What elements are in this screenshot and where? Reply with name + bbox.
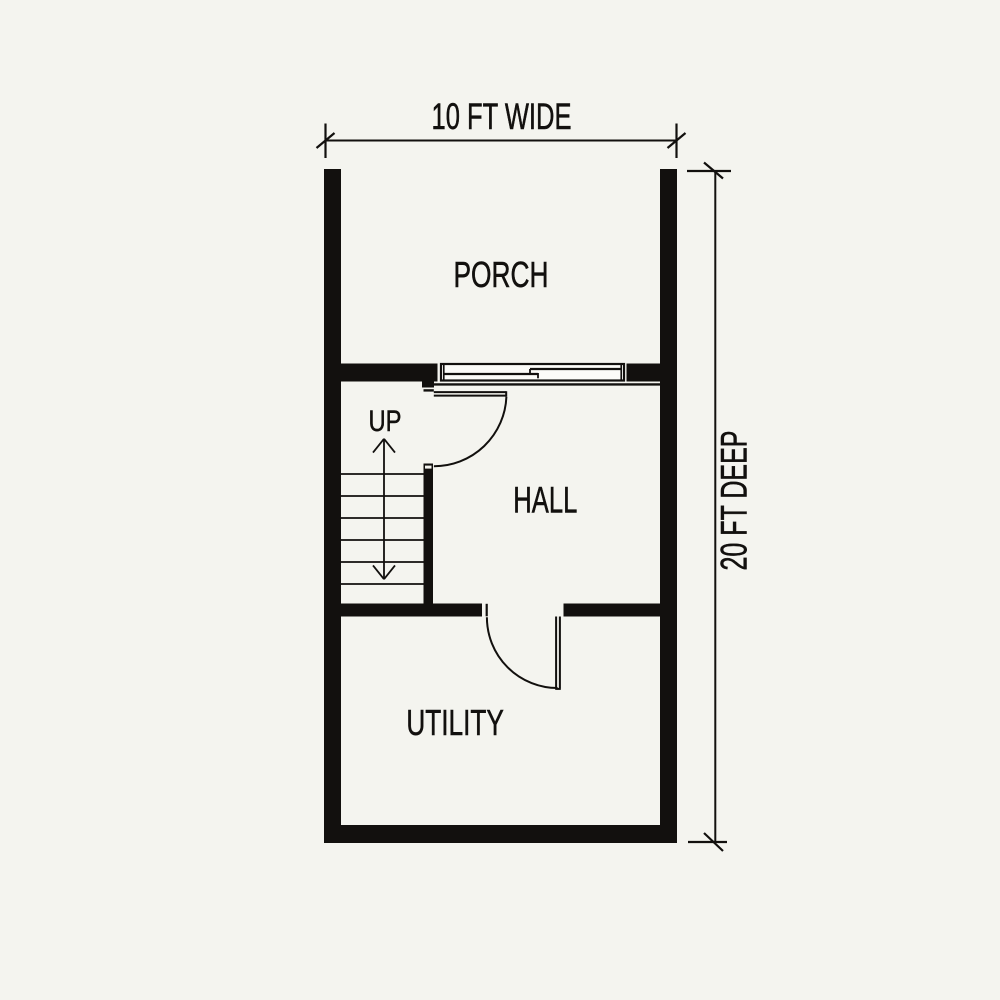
svg-text:PORCH: PORCH xyxy=(454,254,549,295)
svg-text:HALL: HALL xyxy=(513,480,577,521)
svg-text:20 FT DEEP: 20 FT DEEP xyxy=(713,431,755,571)
svg-text:10 FT WIDE: 10 FT WIDE xyxy=(432,95,572,137)
svg-text:UP: UP xyxy=(369,405,402,438)
svg-text:UTILITY: UTILITY xyxy=(406,702,504,743)
